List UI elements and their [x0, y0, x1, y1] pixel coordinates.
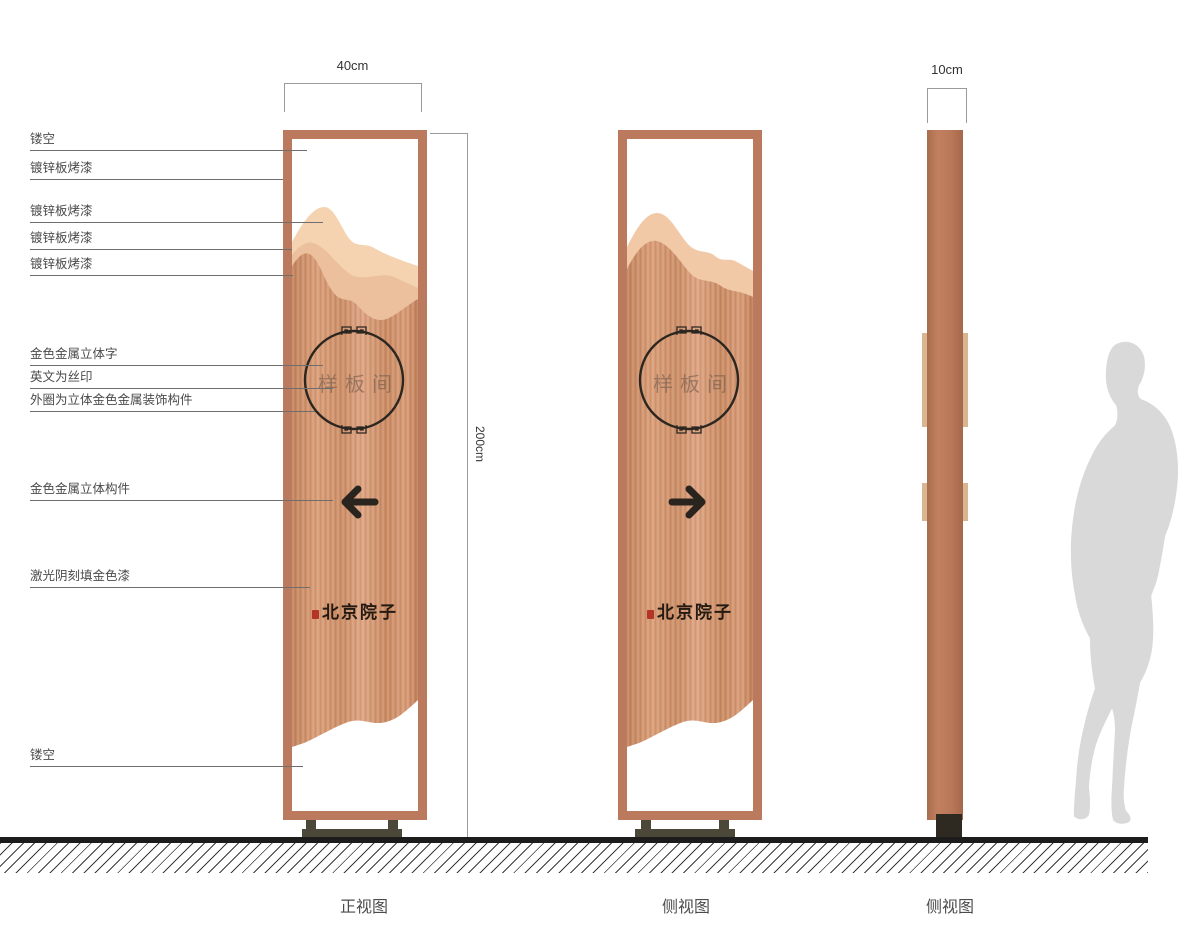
dimension-height-label: 200cm [473, 419, 487, 469]
annotation-label: 镂空 [30, 748, 55, 762]
caption-front-view: 正视图 [304, 893, 424, 917]
caption-profile-view: 侧视图 [890, 893, 1010, 917]
annotation-outer-ring: 外圈为立体金色金属装饰构件 [30, 394, 315, 412]
dimension-depth-label: 10cm [928, 62, 966, 77]
annotation-galvanized-4: 镀锌板烤漆 [30, 258, 293, 276]
dimension-front-width-bracket [284, 83, 422, 112]
signage-design-sheet: 镂空 镀锌板烤漆 镀锌板烤漆 镀锌板烤漆 镀锌板烤漆 金色金属立体字 英文为丝印… [0, 0, 1195, 927]
seal-icon [312, 610, 319, 619]
mountain-graphic [627, 139, 753, 811]
annotation-label: 激光阴刻填金色漆 [30, 569, 130, 583]
dimension-height-extension [430, 133, 467, 134]
annotation-label: 镀锌板烤漆 [30, 231, 93, 245]
ground-hatch [0, 843, 1148, 873]
panel-front: 样板间 北京院子 [283, 130, 427, 820]
profile-protrusion-arrow [963, 483, 968, 521]
annotation-english-silkscreen: 英文为丝印 [30, 371, 333, 389]
profile-protrusion-arrow [922, 483, 927, 521]
profile-protrusion-ring [922, 333, 927, 427]
panel-side: 样板间 北京院子 [618, 130, 762, 820]
mountain-graphic [292, 139, 418, 811]
annotation-label: 镀锌板烤漆 [30, 204, 93, 218]
annotation-label: 镀锌板烤漆 [30, 161, 93, 175]
annotation-label: 镀锌板烤漆 [30, 257, 93, 271]
brand-text: 北京院子 [657, 603, 733, 623]
annotation-gold-component: 金色金属立体构件 [30, 483, 333, 501]
seal-icon [647, 610, 654, 619]
annotation-label: 金色金属立体字 [30, 347, 118, 361]
annotation-hollow-bottom: 镂空 [30, 749, 303, 767]
dimension-depth-bracket [927, 88, 967, 123]
arrow-right-icon [668, 484, 714, 520]
brand-calligraphy: 北京院子 [627, 598, 753, 623]
dimension-front-width-label: 40cm [285, 58, 420, 73]
annotation-galvanized-1: 镀锌板烤漆 [30, 162, 283, 180]
profile-protrusion-ring [963, 333, 968, 427]
annotation-hollow-top: 镂空 [30, 133, 307, 151]
brand-text: 北京院子 [322, 603, 398, 623]
annotation-gold-letters: 金色金属立体字 [30, 348, 323, 366]
annotation-label: 金色金属立体构件 [30, 482, 130, 496]
annotation-label: 外圈为立体金色金属装饰构件 [30, 393, 193, 407]
annotation-label: 英文为丝印 [30, 370, 93, 384]
room-name-label: 样板间 [627, 368, 753, 397]
annotation-galvanized-2: 镀锌板烤漆 [30, 205, 323, 223]
human-silhouette [1032, 337, 1184, 829]
brand-calligraphy: 北京院子 [292, 598, 418, 623]
dimension-height-line [467, 133, 468, 838]
panel-profile [927, 130, 963, 820]
annotation-laser-engraved: 激光阴刻填金色漆 [30, 570, 310, 588]
annotation-label: 镂空 [30, 132, 55, 146]
arrow-left-icon [333, 484, 379, 520]
annotation-galvanized-3: 镀锌板烤漆 [30, 232, 292, 250]
caption-side-view: 侧视图 [626, 893, 746, 917]
